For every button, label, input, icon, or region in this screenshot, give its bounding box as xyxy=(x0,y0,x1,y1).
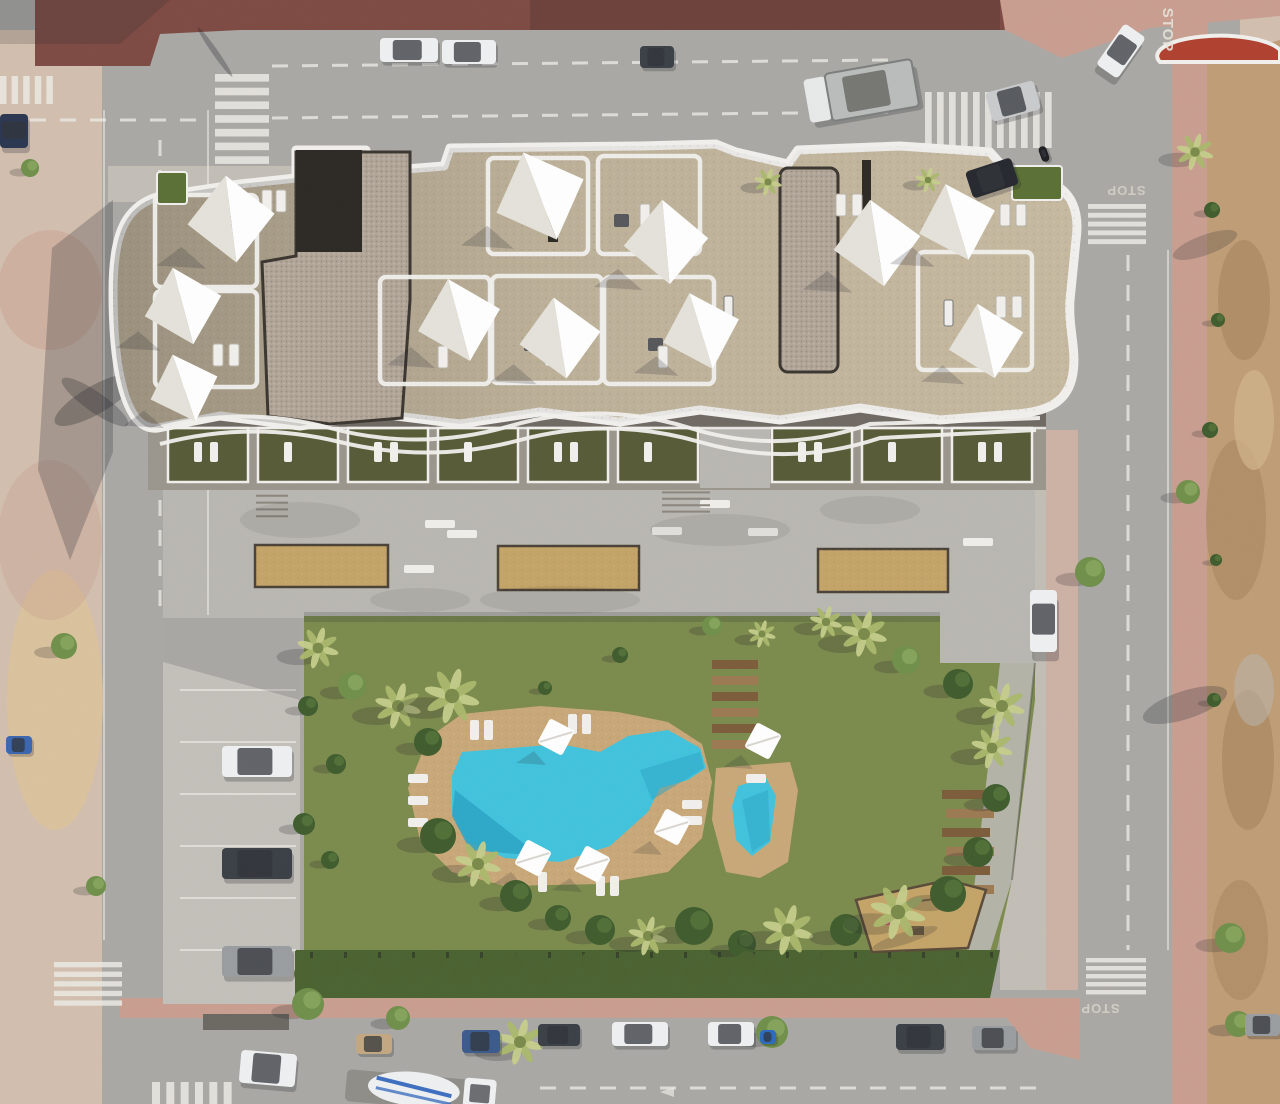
photo-grain xyxy=(0,0,1280,1104)
aerial-photo: STOPSTOPSTOP xyxy=(0,0,1280,1104)
aerial-render-svg: STOPSTOPSTOP xyxy=(0,0,1280,1104)
